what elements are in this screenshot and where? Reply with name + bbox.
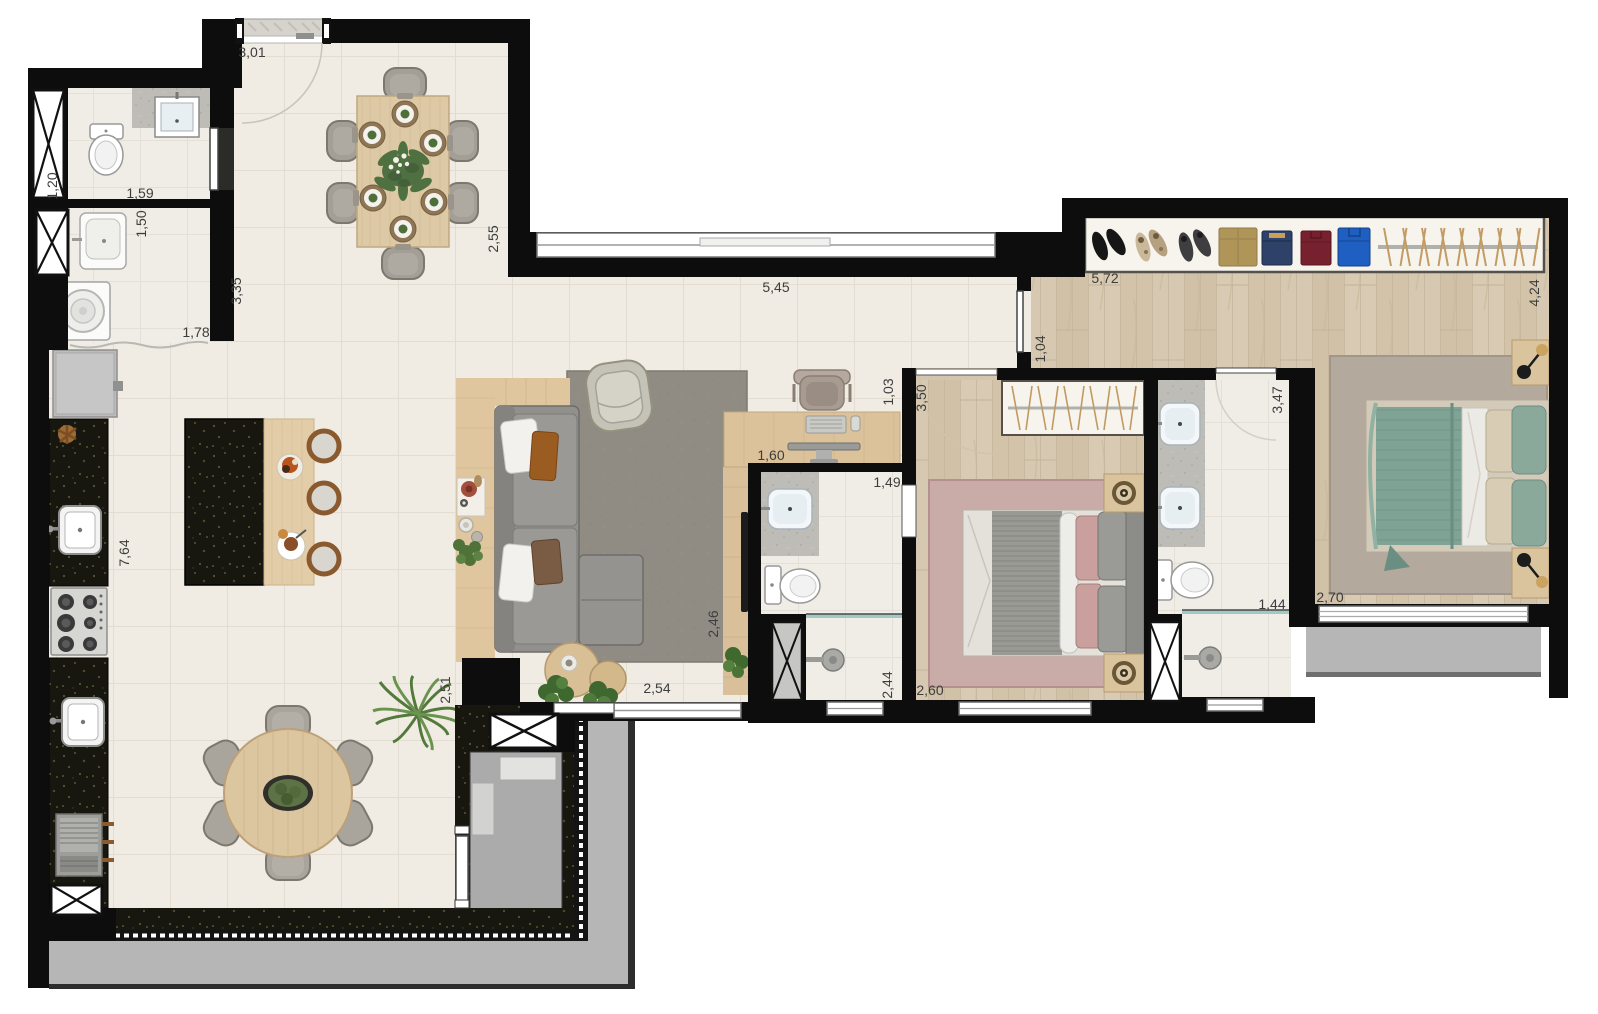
svg-text:1,04: 1,04 bbox=[1032, 335, 1048, 362]
svg-text:2,60: 2,60 bbox=[916, 682, 943, 698]
svg-text:3,47: 3,47 bbox=[1269, 386, 1285, 413]
svg-text:4,24: 4,24 bbox=[1526, 279, 1542, 306]
svg-text:5,72: 5,72 bbox=[1091, 270, 1118, 286]
svg-text:1,20: 1,20 bbox=[44, 172, 60, 199]
svg-text:3,50: 3,50 bbox=[913, 384, 929, 411]
svg-text:2,44: 2,44 bbox=[879, 671, 895, 698]
svg-text:3,01: 3,01 bbox=[238, 44, 265, 60]
svg-text:2,51: 2,51 bbox=[437, 676, 453, 703]
svg-text:1,59: 1,59 bbox=[126, 185, 153, 201]
svg-text:3,35: 3,35 bbox=[228, 277, 244, 304]
svg-text:1,78: 1,78 bbox=[182, 324, 209, 340]
svg-text:1,60: 1,60 bbox=[757, 447, 784, 463]
svg-text:2,55: 2,55 bbox=[485, 225, 501, 252]
svg-text:2,54: 2,54 bbox=[643, 680, 670, 696]
svg-text:1,50: 1,50 bbox=[133, 210, 149, 237]
svg-text:1,44: 1,44 bbox=[1258, 596, 1285, 612]
svg-text:1,03: 1,03 bbox=[880, 378, 896, 405]
svg-text:1,49: 1,49 bbox=[873, 474, 900, 490]
svg-text:5,45: 5,45 bbox=[762, 279, 789, 295]
svg-text:7,64: 7,64 bbox=[116, 539, 132, 566]
svg-text:2,70: 2,70 bbox=[1316, 589, 1343, 605]
svg-text:2,46: 2,46 bbox=[705, 610, 721, 637]
